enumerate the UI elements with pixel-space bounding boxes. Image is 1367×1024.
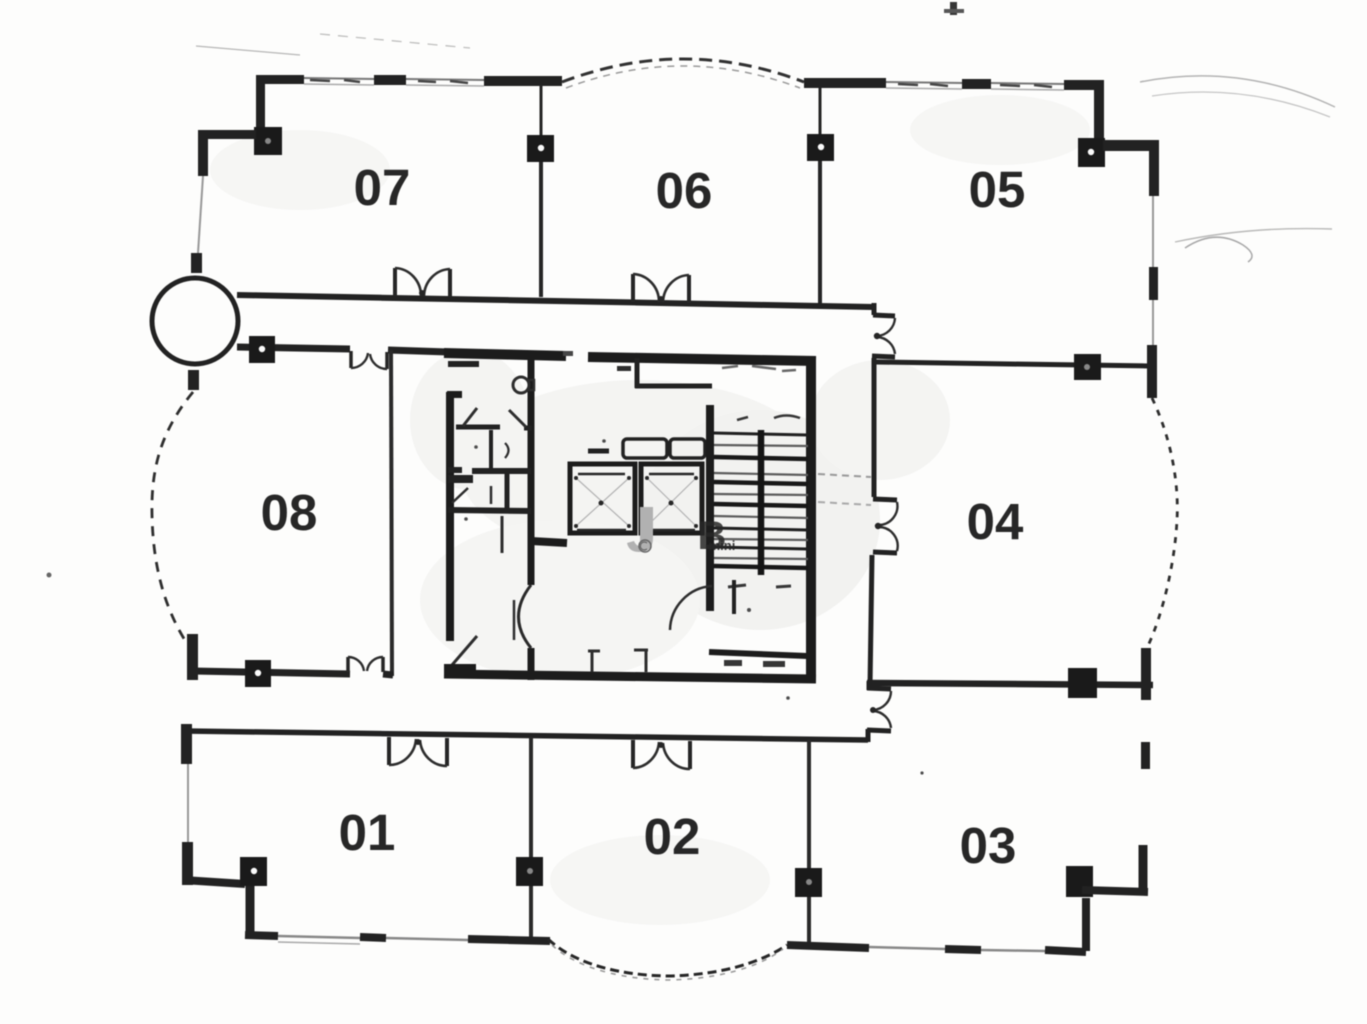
svg-text:06: 06 [656,162,713,219]
svg-text:01: 01 [339,804,396,861]
svg-text:04: 04 [967,493,1024,550]
svg-text:07: 07 [354,159,411,216]
svg-text:05: 05 [969,161,1026,218]
svg-text:02: 02 [644,808,701,865]
svg-text:03: 03 [960,817,1017,874]
svg-text:08: 08 [261,484,318,541]
svg-text:mini: mini [709,538,736,553]
